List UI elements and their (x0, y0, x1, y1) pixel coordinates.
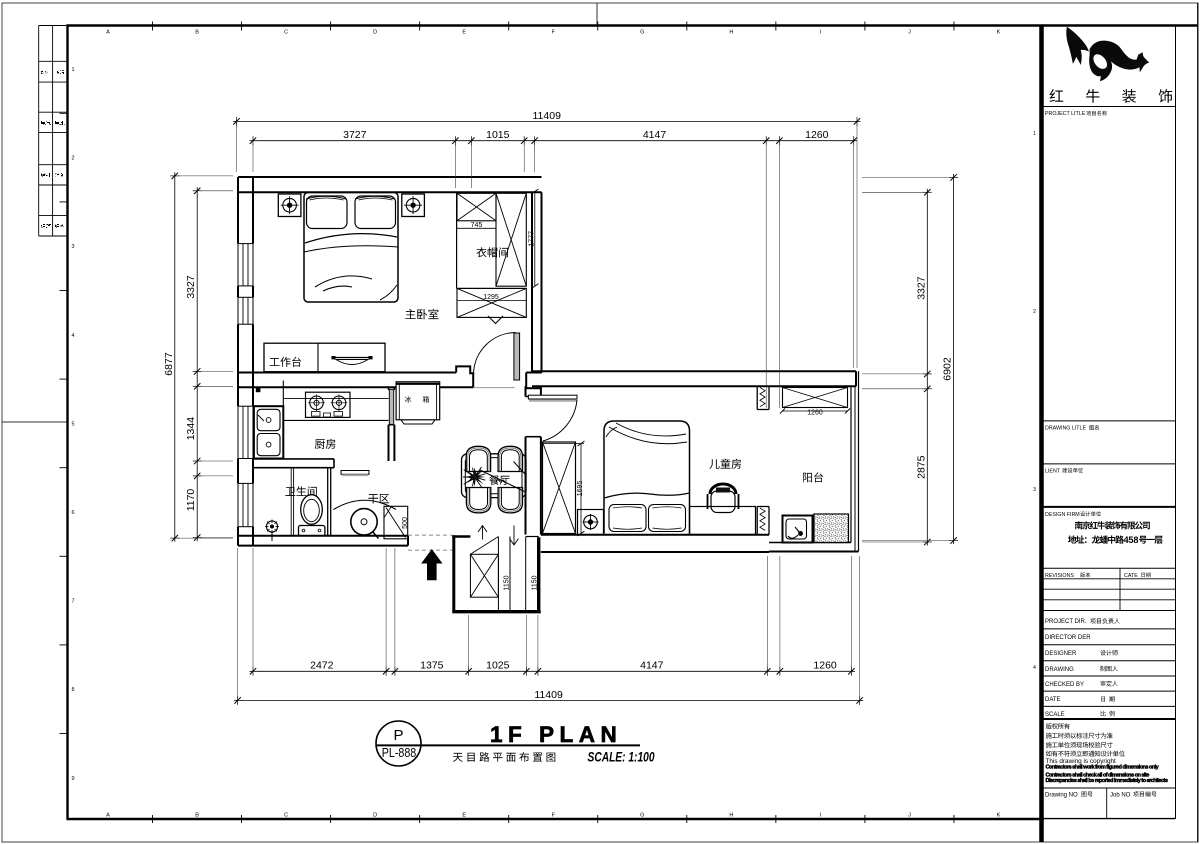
svg-text:7: 7 (72, 599, 75, 605)
svg-text:1025: 1025 (486, 660, 510, 672)
svg-text:K: K (997, 30, 1001, 36)
svg-text:E: E (462, 30, 466, 36)
svg-text:P: P (393, 727, 403, 744)
svg-text:2: 2 (72, 156, 75, 162)
svg-text:8: 8 (72, 687, 75, 693)
svg-text:6: 6 (72, 510, 75, 516)
svg-text:1150: 1150 (504, 575, 511, 590)
svg-text:SCALE: SCALE (1045, 712, 1065, 718)
svg-text:H: H (729, 813, 733, 819)
svg-text:2: 2 (1033, 309, 1036, 315)
svg-text:PROJECT DIR.: PROJECT DIR. (1045, 619, 1087, 625)
svg-text:DRAWING LITLE: DRAWING LITLE (1045, 426, 1086, 432)
svg-text:3327: 3327 (185, 275, 197, 299)
svg-text:A: A (106, 30, 110, 36)
svg-text:C: C (284, 30, 288, 36)
svg-text:6902: 6902 (942, 357, 954, 381)
svg-text:DIRECTOR DER: DIRECTOR DER (1045, 635, 1091, 641)
svg-text:DESIGN FIRM: DESIGN FIRM (1045, 512, 1080, 518)
svg-text:4: 4 (1033, 665, 1036, 671)
svg-text:SCALE: 1:100: SCALE: 1:100 (588, 750, 655, 765)
svg-text:K: K (997, 813, 1001, 819)
svg-text:D: D (373, 30, 377, 36)
svg-text:4147: 4147 (640, 660, 664, 672)
svg-text:9: 9 (72, 776, 75, 782)
svg-text:Contractors shall work from fi: Contractors shall work from figured dime… (1046, 765, 1160, 771)
svg-text:B: B (195, 30, 199, 36)
svg-text:1260: 1260 (807, 410, 823, 417)
svg-text:B: B (195, 813, 199, 819)
svg-text:1695: 1695 (577, 481, 584, 497)
svg-text:11409: 11409 (532, 110, 561, 122)
svg-text:1295: 1295 (483, 294, 499, 301)
svg-text:DESIGNER: DESIGNER (1045, 651, 1077, 657)
svg-text:G: G (640, 30, 644, 36)
svg-text:1260: 1260 (813, 660, 837, 672)
svg-text:E: E (462, 813, 466, 819)
svg-text:H: H (729, 30, 733, 36)
svg-text:REVISIONS: REVISIONS (1045, 573, 1074, 579)
svg-text:6877: 6877 (163, 352, 175, 376)
svg-text:CHECKED BY: CHECKED BY (1045, 682, 1084, 688)
svg-text:11409: 11409 (534, 689, 563, 701)
svg-text:PROJECT LITLE: PROJECT LITLE (1045, 111, 1086, 117)
svg-text:1F PLAN: 1F PLAN (490, 722, 622, 747)
svg-text:DATE: DATE (1045, 697, 1061, 703)
svg-text:2875: 2875 (915, 455, 927, 479)
svg-text:J: J (908, 30, 911, 36)
svg-text:3: 3 (72, 244, 75, 250)
svg-text:1777: 1777 (529, 231, 536, 247)
svg-text:PL-888: PL-888 (382, 746, 417, 760)
svg-text:2472: 2472 (310, 660, 334, 672)
svg-text:1: 1 (1033, 131, 1036, 137)
svg-text:500: 500 (402, 517, 409, 529)
svg-text:1344: 1344 (185, 417, 197, 441)
svg-text:4: 4 (72, 333, 75, 339)
svg-text:5: 5 (72, 421, 75, 427)
svg-text:4147: 4147 (643, 129, 667, 141)
svg-text:1375: 1375 (420, 660, 444, 672)
svg-text:1170: 1170 (185, 489, 197, 512)
svg-text:1: 1 (72, 67, 75, 73)
svg-text:745: 745 (471, 222, 483, 229)
svg-text:A: A (106, 813, 110, 819)
svg-text:3: 3 (1033, 487, 1036, 493)
svg-text:3327: 3327 (915, 276, 927, 300)
svg-text:Drawing NO: Drawing NO (1045, 792, 1078, 798)
svg-text:G: G (640, 813, 644, 819)
svg-text:Discrepancies shall be reporte: Discrepancies shall be reported immediat… (1046, 778, 1168, 784)
svg-text:CATE: CATE (1124, 573, 1138, 579)
svg-text:1260: 1260 (805, 129, 829, 141)
svg-text:C: C (284, 813, 288, 819)
svg-text:458: 458 (1124, 535, 1139, 545)
svg-text:LIENT: LIENT (1045, 468, 1061, 474)
svg-text:1015: 1015 (486, 129, 510, 141)
svg-text:3727: 3727 (343, 129, 367, 141)
svg-text:D: D (373, 813, 377, 819)
svg-text:J: J (908, 813, 911, 819)
svg-text:Job NO: Job NO (1110, 792, 1131, 798)
svg-text:DRAWING: DRAWING (1045, 667, 1074, 673)
svg-text:1150: 1150 (532, 575, 539, 590)
